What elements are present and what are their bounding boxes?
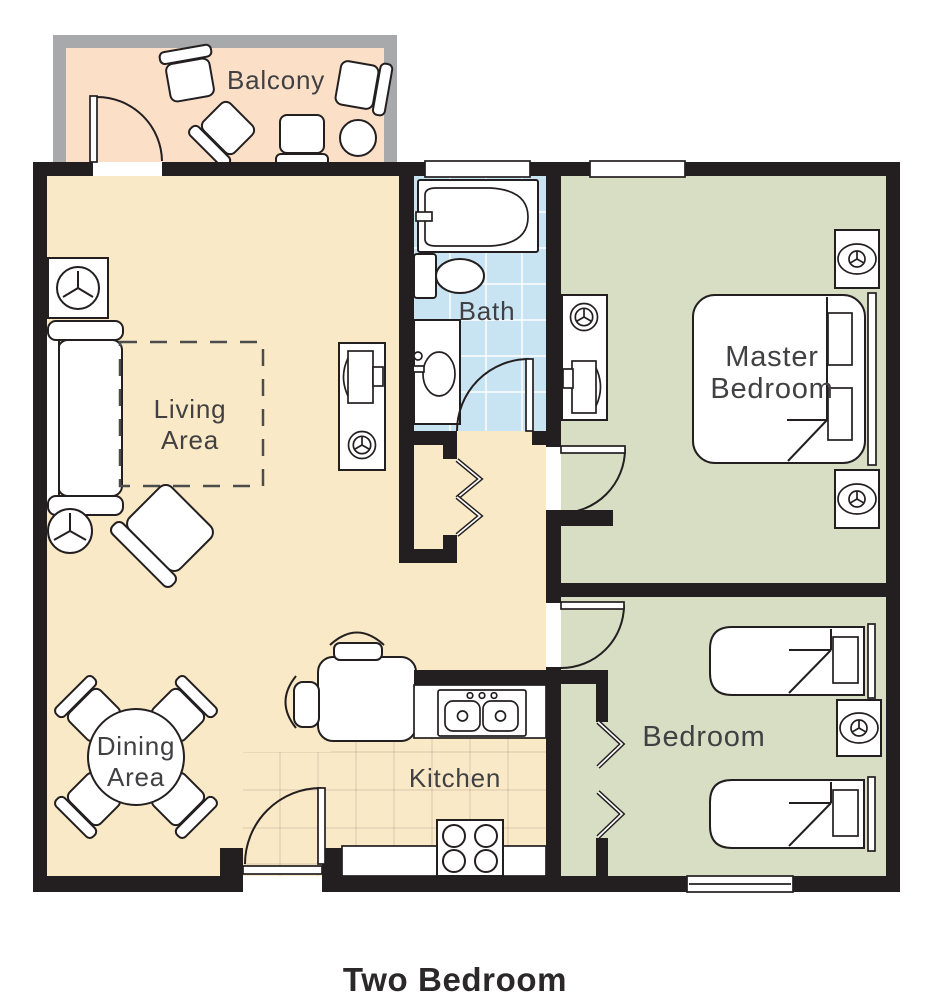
wall [162, 162, 425, 176]
light-fixture-icon [48, 509, 92, 553]
headboard [868, 777, 875, 851]
balcony-table [340, 120, 376, 156]
room-label-bedroom: Bedroom [642, 721, 765, 753]
wall [443, 445, 457, 459]
nightstand [835, 470, 879, 528]
wall [443, 535, 457, 549]
window [425, 161, 530, 177]
room-label-master-2: Bedroom [710, 373, 833, 405]
room-label-kitchen: Kitchen [409, 763, 501, 793]
room-label-balcony: Balcony [227, 65, 325, 95]
room-label-master-1: Master [725, 341, 818, 373]
light-fixture-icon [840, 713, 878, 743]
wall [530, 162, 590, 176]
wall [561, 670, 608, 684]
floor-plan-page: Balcony [0, 0, 927, 1000]
wall [33, 162, 47, 876]
floor-plan-drawing: Balcony [0, 0, 927, 1000]
nightstand [837, 700, 881, 756]
pillow [833, 790, 858, 836]
room-label-dining-1: Dining [97, 731, 176, 761]
window [590, 161, 685, 177]
wall [342, 876, 687, 892]
wall [414, 670, 561, 685]
wall [685, 162, 900, 176]
wall [532, 431, 546, 445]
wall [596, 838, 608, 876]
wall [886, 162, 900, 892]
light-fixture-icon [57, 267, 99, 309]
wall [399, 176, 414, 563]
light-fixture-icon [838, 484, 876, 514]
wall [596, 684, 608, 722]
sofa-armrest [48, 321, 123, 340]
light-fixture-icon [349, 432, 376, 459]
room-label-living-2: Area [161, 425, 219, 455]
room-label-bath: Bath [459, 296, 516, 326]
kitchen-peninsula-counter [318, 657, 416, 741]
balcony-chair [276, 115, 328, 166]
nightstand [835, 230, 879, 288]
room-label-dining-2: Area [107, 762, 165, 792]
wall [399, 431, 457, 445]
light-fixture-icon [571, 304, 598, 331]
twin-bed [710, 777, 875, 851]
tv-stand-master [562, 295, 607, 420]
wall [546, 583, 886, 597]
balcony: Balcony [53, 35, 397, 169]
plan-title: Two Bedroom [343, 961, 567, 998]
bathtub [416, 180, 538, 252]
pillow [828, 313, 852, 365]
tv-stand-living [339, 343, 385, 470]
wall [33, 876, 225, 892]
kitchen-sink [438, 690, 526, 736]
entry-threshold [243, 866, 322, 874]
twin-bed [710, 624, 875, 698]
sofa-back [46, 330, 59, 506]
headboard [868, 624, 875, 698]
headboard [868, 293, 876, 465]
wall [399, 549, 457, 563]
bathroom-vanity-sink [412, 320, 460, 424]
light-fixture-icon [838, 244, 876, 274]
room-label-living-1: Living [154, 394, 227, 424]
wall [546, 176, 561, 447]
pillow [833, 637, 858, 683]
sofa [46, 321, 123, 515]
wall [793, 876, 886, 892]
stove [437, 820, 503, 876]
wall [220, 848, 243, 892]
sofa-seat [58, 340, 122, 496]
wall [546, 667, 561, 892]
